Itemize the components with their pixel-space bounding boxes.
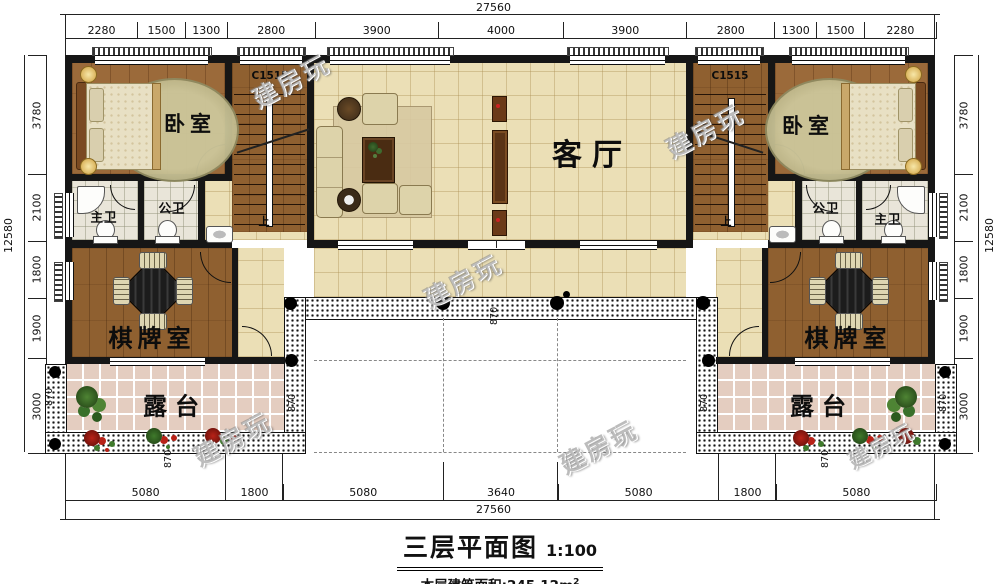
courtyard-railing-left xyxy=(284,297,306,454)
vanity-sink xyxy=(769,226,796,243)
window xyxy=(580,240,657,250)
bedroom-left-label: 卧室 xyxy=(164,108,216,138)
wall xyxy=(686,63,693,240)
window xyxy=(95,55,208,65)
dim-segment: 1900 xyxy=(28,299,46,359)
dim-segment: 1500 xyxy=(817,22,865,38)
dim-line-top-total xyxy=(60,14,940,15)
wall xyxy=(795,181,802,240)
speaker-dot xyxy=(496,104,500,108)
centerline xyxy=(314,452,686,453)
centerline xyxy=(557,318,558,452)
dim-segment: 1500 xyxy=(138,22,186,38)
dim-segment: 5080 xyxy=(66,484,226,500)
dim-segment: 3000 xyxy=(28,359,46,453)
living-room-label: 客厅 xyxy=(552,130,632,174)
dim-segment: 1800 xyxy=(226,484,283,500)
courtyard-railing-right xyxy=(696,297,718,454)
area-label: 本层建筑面积: xyxy=(421,578,507,584)
railing-dim: 870 xyxy=(163,450,174,468)
dim-segment: 3900 xyxy=(316,22,439,38)
dim-top-total: 27560 xyxy=(476,1,511,14)
pillow xyxy=(89,128,104,162)
column-dot xyxy=(550,296,564,310)
window xyxy=(698,55,760,65)
extension-line xyxy=(282,452,283,500)
armchair xyxy=(399,185,432,215)
pillow xyxy=(898,88,913,122)
wall xyxy=(856,181,862,240)
title-block: 三层平面图1:100 本层建筑面积:245.12m2 xyxy=(360,528,640,584)
chair xyxy=(872,277,889,305)
column-dot xyxy=(49,438,61,450)
drawing-title: 三层平面图 xyxy=(403,533,538,562)
flowers xyxy=(852,428,868,444)
railing-dim: 870 xyxy=(820,450,831,468)
column-dot xyxy=(702,354,715,367)
window-sill xyxy=(939,262,948,302)
flowers xyxy=(793,430,809,446)
window xyxy=(240,55,302,65)
chess-room-left-label: 棋牌室 xyxy=(109,319,196,354)
column-dot xyxy=(284,297,297,310)
watermark: 建房玩 xyxy=(552,410,643,481)
bedside-lamp xyxy=(905,66,922,83)
dim-segment: 1300 xyxy=(186,22,228,38)
dim-segment: 4000 xyxy=(439,22,565,38)
railing-dim: 870 xyxy=(44,388,55,406)
flowers xyxy=(146,428,162,444)
drawing-title-row: 三层平面图1:100 xyxy=(397,528,603,571)
extension-line xyxy=(443,462,444,500)
wall xyxy=(198,181,205,240)
dim-segment: 2800 xyxy=(687,22,775,38)
side-table xyxy=(337,188,361,212)
extension-line xyxy=(225,452,226,500)
master-bath-right-label: 主卫 xyxy=(874,209,901,228)
flowers xyxy=(898,428,914,444)
bedside-lamp xyxy=(80,158,97,175)
bedroom-right-label: 卧室 xyxy=(782,110,834,140)
walkway-floor xyxy=(314,248,686,297)
column-dot xyxy=(49,366,61,378)
column-dot xyxy=(939,366,951,378)
toilet-tank xyxy=(93,236,118,244)
centerline xyxy=(443,318,444,452)
flowers xyxy=(205,428,221,444)
bedside-lamp xyxy=(905,158,922,175)
pillow xyxy=(89,88,104,122)
extension-line xyxy=(934,452,935,519)
window xyxy=(570,55,665,65)
dim-segment: 3780 xyxy=(28,56,46,175)
window xyxy=(330,55,450,65)
window-sill xyxy=(939,193,948,239)
chair xyxy=(809,277,826,305)
window xyxy=(928,262,937,300)
railing-dim: 870 xyxy=(287,394,298,412)
window xyxy=(795,357,890,366)
shrub xyxy=(76,386,98,408)
floor-plan: 27560 2280 1500 1300 2800 3900 4000 3900… xyxy=(0,0,1000,584)
armchair xyxy=(362,183,398,214)
column-dot xyxy=(939,438,951,450)
bedside-lamp xyxy=(80,66,97,83)
dim-segment: 2100 xyxy=(955,175,973,242)
window xyxy=(338,240,413,250)
extension-line xyxy=(718,452,719,500)
railing-dim: 870 xyxy=(489,307,500,325)
wall xyxy=(138,181,144,240)
dim-line-left-total xyxy=(24,55,25,452)
dim-segment: 2280 xyxy=(66,22,138,38)
railing-dim: 870 xyxy=(938,394,949,412)
door-mullion xyxy=(496,240,497,248)
courtyard-railing-top xyxy=(284,297,718,320)
public-bath-right-label: 公卫 xyxy=(812,198,839,217)
window xyxy=(110,357,205,366)
dim-row-bottom-segments: 5080 1800 5080 3640 5080 1800 5080 xyxy=(65,484,937,501)
bed-foot-bench xyxy=(152,83,161,170)
flowers xyxy=(84,430,100,446)
column-dot xyxy=(436,296,450,310)
window xyxy=(928,193,937,237)
speaker xyxy=(492,210,507,236)
public-bath-left-label: 公卫 xyxy=(158,198,185,217)
dim-segment: 5080 xyxy=(559,484,719,500)
toilet-tank xyxy=(155,236,180,244)
railing-dim: 870 xyxy=(699,394,710,412)
dim-segment: 3640 xyxy=(444,484,559,500)
stair-up-label: 上 xyxy=(259,213,270,229)
toilet-tank xyxy=(881,236,906,244)
dim-segment: 2800 xyxy=(228,22,316,38)
chair xyxy=(176,277,193,305)
dim-segment: 1300 xyxy=(775,22,817,38)
dim-left-total: 12580 xyxy=(2,218,15,253)
coffee-table xyxy=(362,137,395,183)
chair xyxy=(139,252,167,269)
dim-bottom-total: 27560 xyxy=(476,503,511,516)
tv-cabinet xyxy=(492,130,508,204)
window-code-left: C1515 xyxy=(252,70,289,82)
vanity-sink xyxy=(206,226,233,243)
dim-segment: 1900 xyxy=(955,299,973,359)
window-code-right: C1515 xyxy=(712,70,749,82)
area-value: 245.12m xyxy=(507,578,573,584)
dim-segment: 3900 xyxy=(564,22,687,38)
armchair xyxy=(362,93,398,125)
column-dot xyxy=(696,296,710,310)
speaker-dot xyxy=(496,218,500,222)
dim-segment: 2100 xyxy=(28,175,46,242)
dim-line-bottom-total xyxy=(60,519,940,520)
window xyxy=(65,262,74,300)
wall xyxy=(762,248,768,357)
stair-right-rail xyxy=(728,98,735,227)
stair-up-label: 上 xyxy=(721,213,732,229)
extension-line xyxy=(65,452,66,519)
dim-segment: 2280 xyxy=(865,22,936,38)
stair-right-passage xyxy=(693,232,768,240)
dim-segment: 3780 xyxy=(955,56,973,175)
wall xyxy=(307,63,314,240)
speaker xyxy=(492,96,507,122)
side-table xyxy=(337,97,361,121)
shrub xyxy=(895,386,917,408)
wall xyxy=(232,248,238,357)
terrace-left-label: 露台 xyxy=(143,387,207,422)
dim-segment: 3000 xyxy=(955,359,973,453)
window-sill xyxy=(54,262,63,302)
chair xyxy=(835,252,863,269)
dim-segment: 1800 xyxy=(28,242,46,299)
area-row: 本层建筑面积:245.12m2 xyxy=(360,574,640,584)
toilet-tank xyxy=(819,236,844,244)
drawing-scale: 1:100 xyxy=(546,541,597,560)
extension-line xyxy=(775,452,776,500)
stair-left-rail xyxy=(266,98,273,227)
centerline xyxy=(314,360,686,361)
pillow xyxy=(898,128,913,162)
area-sup: 2 xyxy=(573,578,579,584)
dim-row-top-segments: 2280 1500 1300 2800 3900 4000 3900 2800 … xyxy=(65,22,937,39)
dim-line-right-total xyxy=(978,55,979,452)
window xyxy=(792,55,905,65)
dim-segment: 1800 xyxy=(719,484,776,500)
chair xyxy=(113,277,130,305)
dim-segment: 1800 xyxy=(955,242,973,299)
window-sill xyxy=(54,193,63,239)
terrace-right-label: 露台 xyxy=(790,387,854,422)
window xyxy=(65,193,74,237)
bed-foot-bench xyxy=(841,83,850,170)
stair-left-passage xyxy=(232,232,307,240)
column-dot xyxy=(285,354,298,367)
extension-line xyxy=(65,14,66,55)
dim-segment: 5080 xyxy=(284,484,444,500)
column-dot xyxy=(563,291,570,298)
chess-room-right-label: 棋牌室 xyxy=(805,319,892,354)
extension-line xyxy=(934,14,935,55)
table-plant xyxy=(368,142,378,152)
extension-line xyxy=(557,462,558,500)
master-bath-left-label: 主卫 xyxy=(90,207,117,226)
dim-segment: 5080 xyxy=(777,484,936,500)
dim-right-total: 12580 xyxy=(983,218,996,253)
